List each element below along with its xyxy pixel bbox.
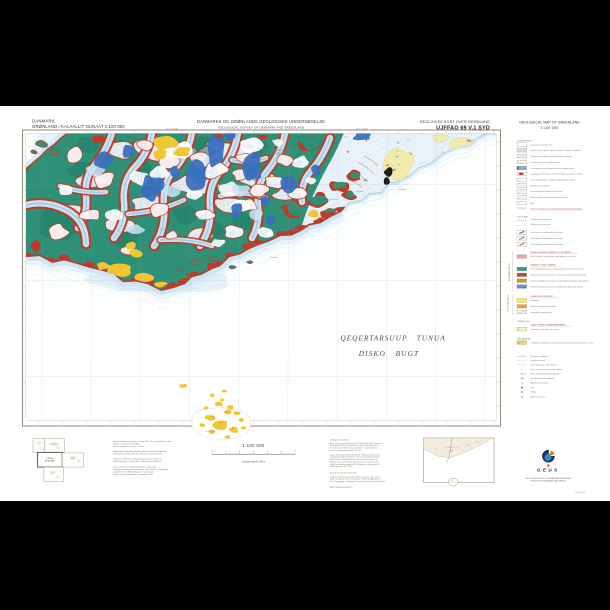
svg-text:Geological compilation:: Geological compilation:	[330, 439, 350, 442]
svg-text:DISKO: DISKO	[444, 447, 455, 449]
svg-text:69 V.1 NORD: 69 V.1 NORD	[356, 129, 369, 131]
svg-text:GEUS: GEUS	[537, 467, 560, 472]
svg-text:QEQERTARSUUP TUNUA: QEQERTARSUUP TUNUA	[340, 334, 445, 343]
svg-text:ARCHAEAN CRATON: ARCHAEAN CRATON	[508, 262, 511, 281]
svg-text:NUUSSUAQ GROUP: NUUSSUAQ GROUP	[507, 294, 510, 312]
svg-text:Paakitsoq: Paakitsoq	[398, 188, 405, 191]
svg-text:Matrikelstyrelsen, Copenhagen: Matrikelstyrelsen, Copenhagen - with per…	[113, 460, 162, 463]
svg-text:Glaciation recession limit: Glaciation recession limit	[531, 223, 551, 226]
svg-text:PALAEOGENE SEDIMENTS: PALAEOGENE SEDIMENTS	[531, 295, 555, 298]
svg-text:Fault, uncertain or approximat: Fault, uncertain or approximate position	[531, 368, 563, 371]
svg-text:Laboratory, Geological Survey: Laboratory, Geological Survey of Denmark…	[113, 453, 162, 456]
svg-text:Paakitsoq: Paakitsoq	[88, 236, 95, 239]
svg-text:6: 6	[253, 451, 254, 453]
svg-text:Picritic and olivine basalt la: Picritic and olivine basalt lava flows w…	[531, 268, 584, 271]
svg-text:Paakitsoq: Paakitsoq	[160, 228, 167, 231]
svg-text:Printed: Schultz Grafisk A/S,: Printed: Schultz Grafisk A/S, Copenhagen…	[113, 473, 153, 476]
svg-text:BUGT: BUGT	[450, 451, 454, 453]
svg-text:Paakitsoq: Paakitsoq	[300, 208, 307, 211]
svg-text:Sandstone: Sandstone	[531, 299, 540, 302]
svg-text:GRØNLAND / KALAALLIT NUNAAT 1: GRØNLAND / KALAALLIT NUNAAT 1:100 000	[32, 124, 125, 129]
svg-text:GEOLOGICAL SURVEY OF DENMARK A: GEOLOGICAL SURVEY OF DENMARK AND GREENLA…	[218, 126, 305, 130]
svg-text:MAFANE VOLCANIC MEMBER: MAFANE VOLCANIC MEMBER	[531, 264, 557, 267]
svg-text:PALAEOGENE AND PHANEROZOIC SED: PALAEOGENE AND PHANEROZOIC SEDIMENTS	[531, 251, 573, 254]
svg-text:Town: Town	[531, 387, 535, 389]
svg-text:PRECAMBRIAN: PRECAMBRIAN	[517, 338, 532, 341]
svg-text:Paakitsoq: Paakitsoq	[260, 148, 267, 151]
svg-text:69 V.1 SYD: 69 V.1 SYD	[45, 461, 55, 463]
svg-text:gn: gn	[518, 342, 520, 344]
svg-text:GEOLOGICAL MAP OF GREENLAND: GEOLOGICAL MAP OF GREENLAND	[519, 121, 580, 125]
svg-text:DANMARK: DANMARK	[32, 119, 55, 124]
svg-text:Vertical or overturned layerin: Vertical or overturned layering	[531, 377, 555, 380]
svg-text:Marine deposits, with terraces: Marine deposits, with terraces and beach…	[531, 196, 568, 199]
svg-text:2: 2	[225, 451, 226, 453]
svg-text:Abandoned village: Abandoned village	[531, 396, 546, 399]
svg-text:Ice margin/glacial deposits, m: Ice margin/glacial deposits, melt annual	[531, 190, 563, 193]
svg-text:Marine and rock glacier post,: Marine and rock glacier post, history (i…	[531, 155, 573, 158]
svg-text:Lambert conformal conic 69d15: Lambert conformal conic 69d15	[113, 442, 139, 445]
svg-text:DANMARKS OG GRØNLANDS GEOLOGIS: DANMARKS OG GRØNLANDS GEOLOGISKE UNDERSØ…	[197, 119, 325, 124]
svg-text:Orthogneiss, amphibolite and m: Orthogneiss, amphibolite and minor grani…	[531, 341, 594, 344]
svg-text:CB2 321 153: CB2 321 153	[575, 492, 585, 494]
svg-text:MINISTRY OF ENVIRONMENT AND EN: MINISTRY OF ENVIRONMENT AND ENERGY	[531, 479, 567, 482]
svg-text:Mafic intrusions, sheeted dyke: Mafic intrusions, sheeted dykes and gabb…	[531, 255, 576, 258]
svg-text:Land deposit, minor Sarqaq For: Land deposit, minor Sarqaq Formation und…	[531, 167, 575, 170]
svg-text:Contour interval 100 m: Contour interval 100 m	[242, 461, 265, 464]
svg-text:Reproduced from topographical: Reproduced from topographical maps GST 1…	[113, 440, 172, 443]
svg-text:(JAKOBSHAVN ISBRÆ): (JAKOBSHAVN ISBRÆ)	[270, 153, 296, 156]
svg-text:Reproduction: Kort & Matrikels: Reproduction: Kort & Matrikelstyrelsen, …	[113, 466, 157, 469]
svg-text:Strike and dip of lithological: Strike and dip of lithological layering	[531, 373, 560, 376]
svg-text:0: 0	[212, 451, 213, 453]
svg-text:DISKO BUGT: DISKO BUGT	[358, 349, 420, 358]
svg-text:Landslipped, altered mass of m: Landslipped, altered mass of ment lithol…	[531, 173, 583, 176]
svg-text:Mudstone, Naajaat sha complex: Mudstone, Naajaat sha complex	[531, 305, 557, 308]
svg-text:69 V.2 NORD: 69 V.2 NORD	[49, 444, 59, 446]
svg-text:Syd. Copenhagen: Geological Su: Syd. Copenhagen: Geological Survey of De…	[330, 480, 385, 483]
svg-text:Marine and rock glacier deposi: Marine and rock glacier deposit, marine …	[531, 149, 582, 152]
svg-text:25: 25	[525, 373, 527, 375]
svg-text:Paakitsoq: Paakitsoq	[210, 203, 217, 206]
svg-text:Basalt dyke and conformable ba: Basalt dyke and conformable basalt type	[531, 231, 563, 234]
svg-text:68 V.1: 68 V.1	[52, 472, 56, 474]
svg-text:Paakitsoq: Paakitsoq	[270, 256, 277, 259]
svg-text:Paakitsoq: Paakitsoq	[190, 158, 197, 161]
svg-text:Kitsissunnguit: Kitsissunnguit	[205, 430, 216, 433]
svg-text:UJFFAQ: UJFFAQ	[46, 457, 53, 460]
svg-text:HOLOCENE: HOLOCENE	[517, 216, 528, 218]
svg-text:GEOLOGISK KORT OVER GRØNLAND: GEOLOGISK KORT OVER GRØNLAND	[420, 120, 491, 124]
svg-text:Tholeiitic basalt lava flows,: Tholeiitic basalt lava flows, inc. colum…	[531, 274, 587, 277]
svg-text:Abandoned coal mine: Abandoned coal mine	[531, 382, 548, 385]
svg-text:1:100 000: 1:100 000	[541, 126, 559, 130]
svg-text:4: 4	[239, 451, 240, 453]
svg-text:Digital compilation: concept C: Digital compilation: concept C. Marcu	[113, 445, 144, 448]
svg-text:Basalt dyke and conformable ba: Basalt dyke and conformable basalt type	[531, 237, 563, 240]
svg-text:methodography 735, 1993: methodography 735, 1993	[330, 465, 352, 468]
svg-text:Basalt dyke and conformable ba: Basalt dyke and conformable basalt type	[531, 243, 563, 246]
svg-text:12: 12	[294, 451, 296, 453]
svg-text:Fault, downthrown side indicat: Fault, downthrown side indicated	[531, 364, 557, 367]
svg-text:Land deposit, minor, undiffere: Land deposit, minor, undifferentiated	[531, 161, 560, 164]
svg-text:69 V.2 NORD: 69 V.2 NORD	[166, 129, 179, 131]
svg-text:QUATERNARY: QUATERNARY	[517, 139, 532, 142]
svg-text:Paakitsoq: Paakitsoq	[250, 220, 257, 223]
svg-text:Boundary, inferred: Boundary, inferred	[531, 360, 546, 362]
svg-text:Olivine and feldspar microphyr: Olivine and feldspar microphyric basalt;…	[531, 279, 589, 282]
svg-text:ISB N 2000/9PUCO/8P*10: ISB N 2000/9PUCO/8P*10	[330, 487, 352, 489]
svg-text:Village: Village	[531, 392, 536, 394]
svg-text:Alluvial fans and deltas: Alluvial fans and deltas	[531, 184, 549, 187]
svg-text:Area of the Disko(?) S (for 20: Area of the Disko(?) S (for 2000	[330, 471, 357, 474]
svg-text:Paakitsoq: Paakitsoq	[330, 198, 337, 201]
svg-text:8: 8	[267, 451, 268, 453]
svg-text:10: 10	[280, 451, 282, 453]
svg-text:Picritic and olivine basalt la: Picritic and olivine basalt lavas with p…	[531, 285, 583, 288]
svg-text:CRETACEOUS: CRETACEOUS	[517, 320, 531, 323]
svg-text:Sandstone locally with coal se: Sandstone locally with coal seams	[531, 328, 558, 331]
svg-text:Dike: Dike	[531, 203, 535, 205]
svg-text:Fresh to semi-fresh water asso: Fresh to semi-fresh water associated wit…	[531, 207, 583, 210]
svg-text:1:100 000: 1:100 000	[242, 443, 264, 448]
svg-text:Interbedded sandstones (s): Interbedded sandstones (s)	[531, 311, 553, 314]
svg-text:Projection: UTM zone 22 (Ellip: Projection: UTM zone 22 (Ellipsoid datum…	[113, 457, 162, 460]
svg-text:Paakitsoq: Paakitsoq	[120, 210, 127, 213]
svg-text:69 V.1: 69 V.1	[71, 458, 75, 460]
svg-text:Boundary, established: Boundary, established	[531, 355, 549, 358]
svg-text:Glaciation maximum limit: Glaciation maximum limit	[531, 218, 551, 221]
svg-text:Talus and deflocation, includi: Talus and deflocation, including undiffe…	[531, 179, 576, 182]
svg-text:map at scale approximately 1:6: map at scale approximately 1:60 000	[330, 449, 361, 452]
svg-text:Coastal plain and tidal zone: Coastal plain and tidal zone	[531, 143, 553, 146]
svg-text:ATANE FORMATION (AVANNAA MEMBE: ATANE FORMATION (AVANNAA MEMBER)	[531, 323, 567, 326]
svg-text:Paakitsoq: Paakitsoq	[356, 190, 363, 193]
